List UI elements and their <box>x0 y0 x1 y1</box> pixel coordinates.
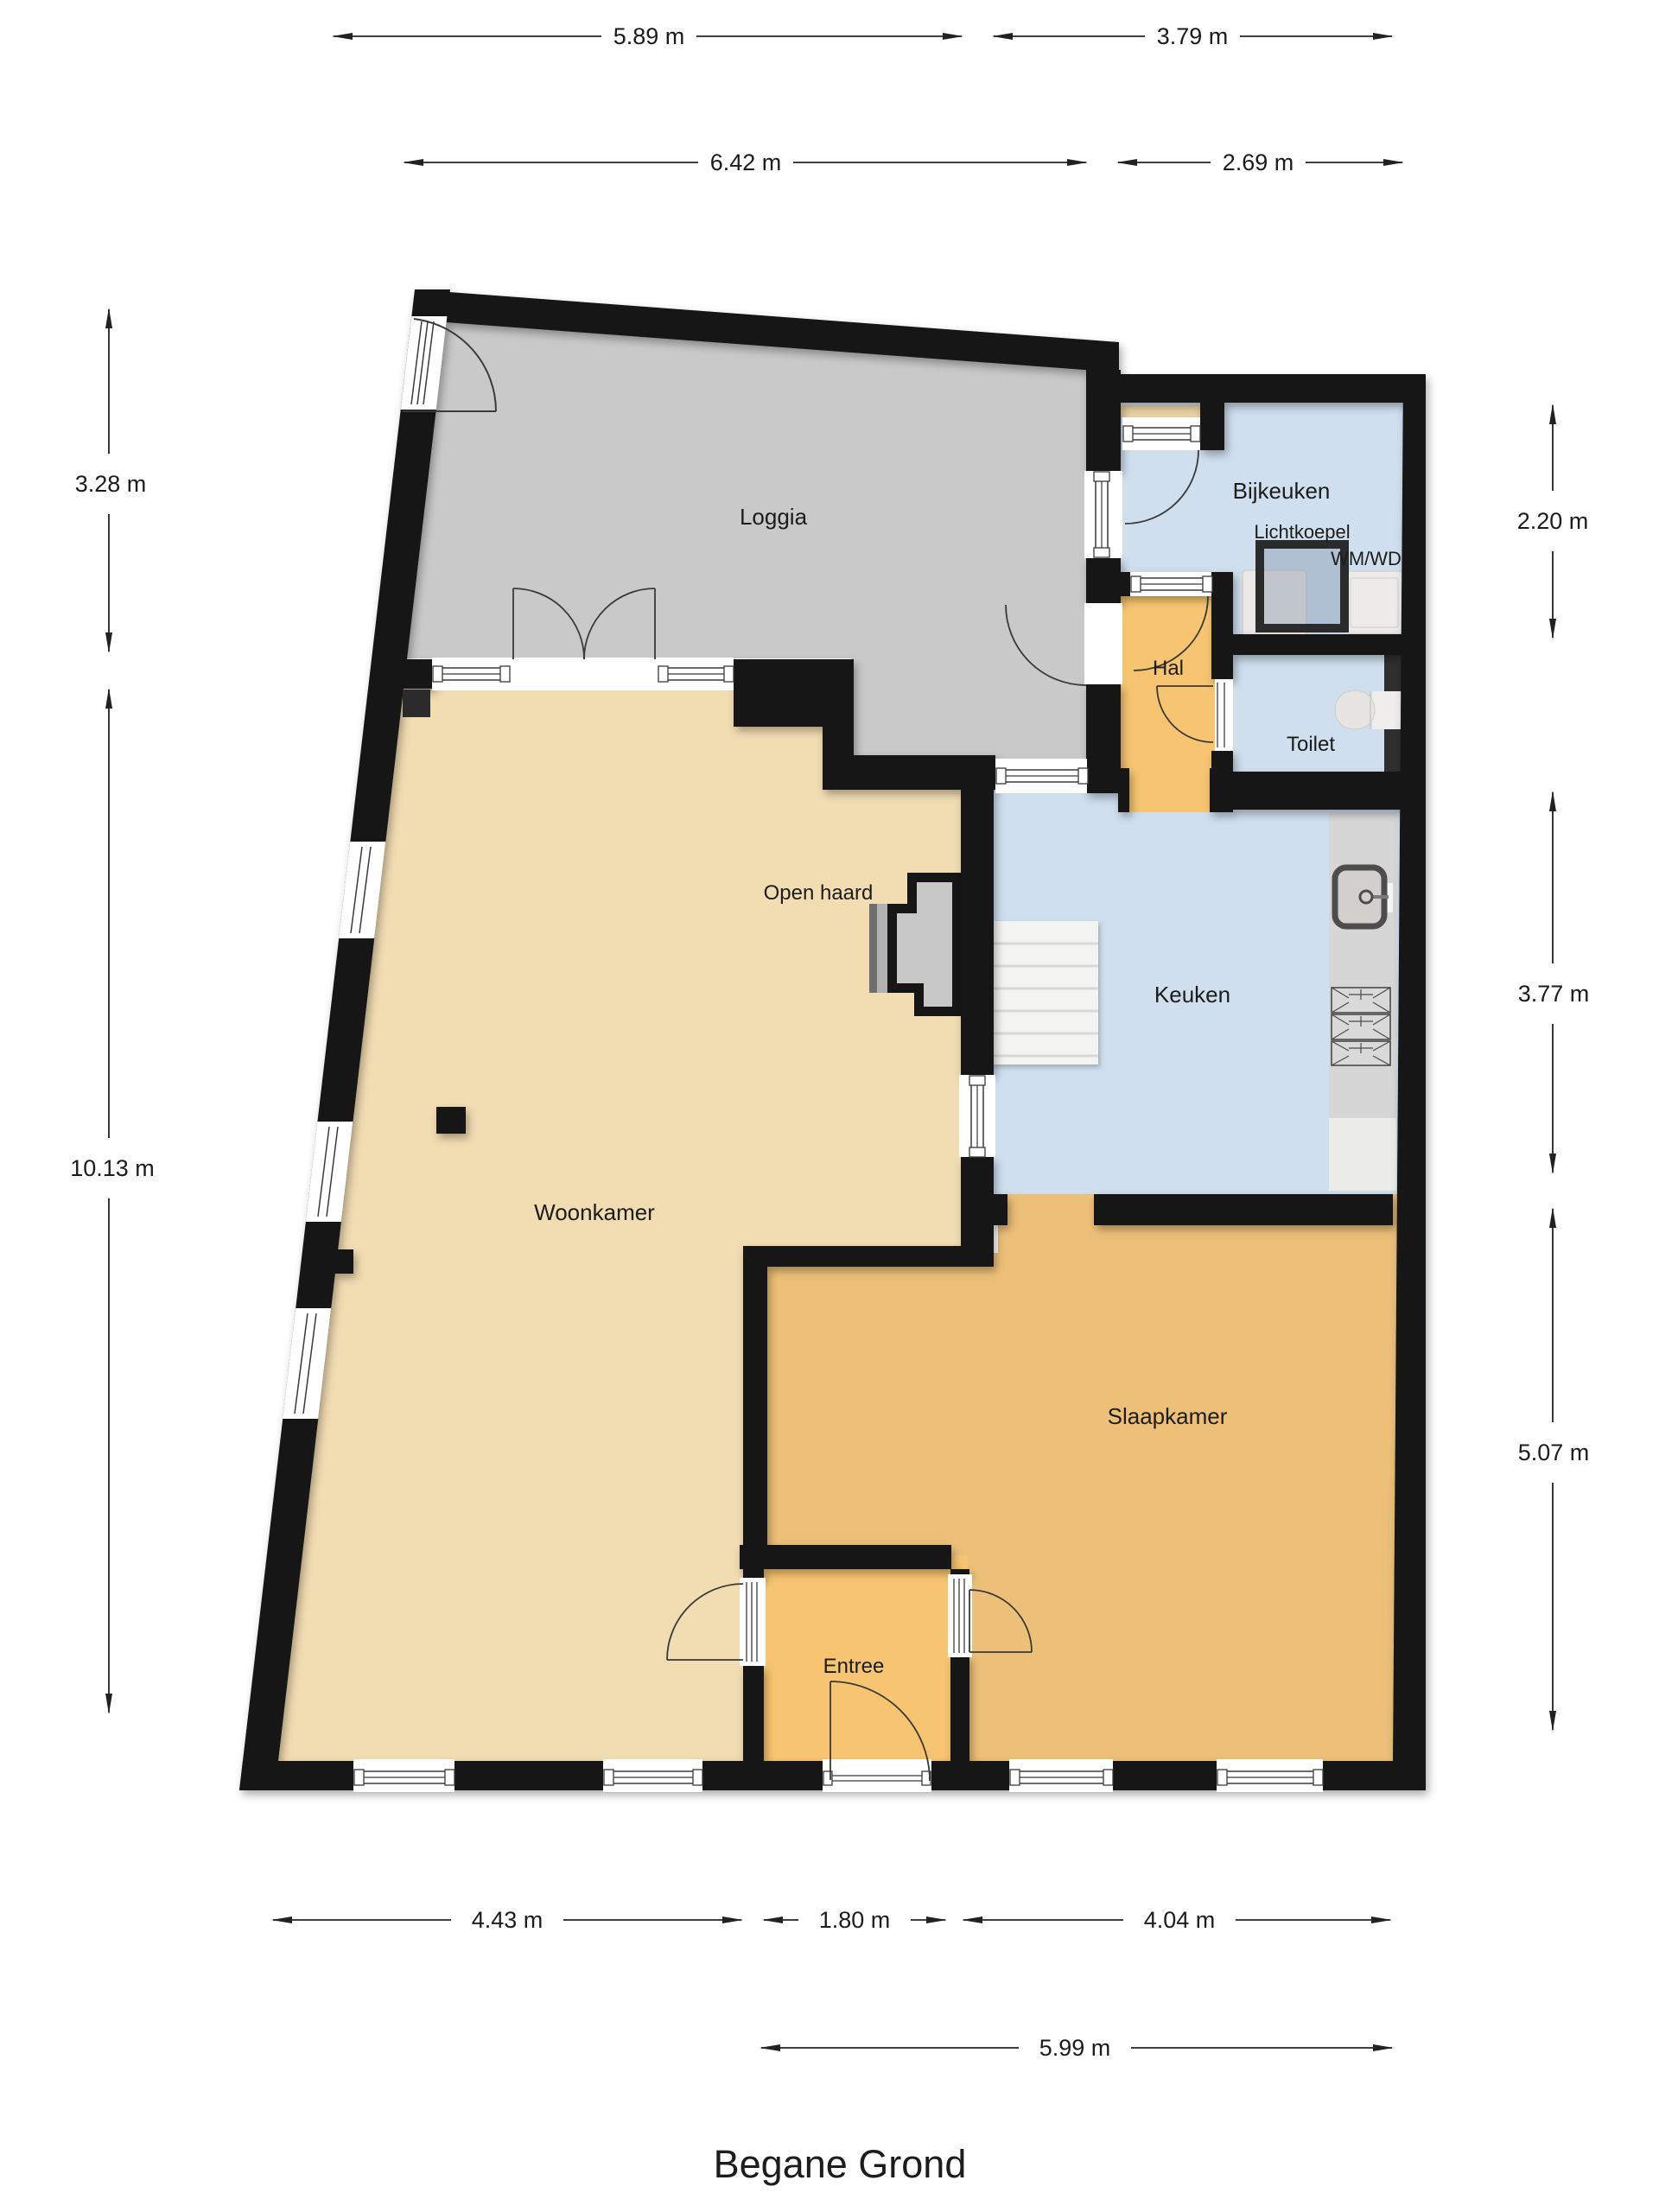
svg-text:Begane Grond: Begane Grond <box>714 2142 967 2186</box>
svg-text:Loggia: Loggia <box>740 504 808 530</box>
svg-text:Bijkeuken: Bijkeuken <box>1233 478 1331 504</box>
svg-text:Entree: Entree <box>823 1655 885 1678</box>
svg-text:2.20 m: 2.20 m <box>1517 508 1589 534</box>
svg-text:Open haard: Open haard <box>764 881 874 905</box>
svg-text:3.28 m: 3.28 m <box>75 471 147 497</box>
svg-text:Woonkamer: Woonkamer <box>534 1199 655 1225</box>
svg-text:Slaapkamer: Slaapkamer <box>1108 1403 1228 1429</box>
svg-text:3.77 m: 3.77 m <box>1518 981 1590 1007</box>
svg-text:Lichtkoepel: Lichtkoepel <box>1254 521 1350 543</box>
svg-text:4.43 m: 4.43 m <box>472 1907 543 1933</box>
svg-text:Toilet: Toilet <box>1287 733 1335 756</box>
svg-text:5.99 m: 5.99 m <box>1039 2035 1111 2061</box>
svg-text:Keuken: Keuken <box>1154 982 1230 1007</box>
svg-text:Hal: Hal <box>1153 657 1184 680</box>
svg-text:4.04 m: 4.04 m <box>1144 1907 1216 1933</box>
svg-text:1.80 m: 1.80 m <box>819 1907 891 1933</box>
svg-text:5.89 m: 5.89 m <box>613 23 685 49</box>
svg-text:10.13 m: 10.13 m <box>70 1155 155 1181</box>
svg-text:5.07 m: 5.07 m <box>1518 1440 1590 1465</box>
svg-text:3.79 m: 3.79 m <box>1157 23 1229 49</box>
svg-text:6.42 m: 6.42 m <box>710 149 782 175</box>
svg-text:WM/WD: WM/WD <box>1331 548 1402 569</box>
svg-text:2.69 m: 2.69 m <box>1223 149 1294 175</box>
